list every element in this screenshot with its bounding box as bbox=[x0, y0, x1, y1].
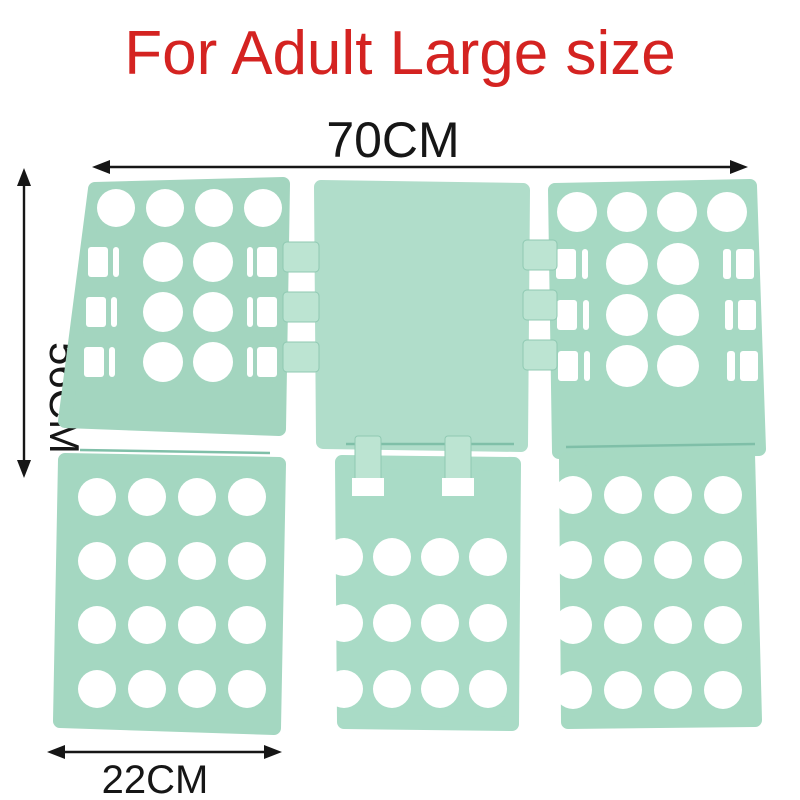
edge-slot bbox=[725, 300, 733, 330]
edge-slot bbox=[257, 347, 277, 377]
fold-hole bbox=[704, 671, 742, 709]
fold-hole bbox=[554, 541, 592, 579]
fold-hole bbox=[654, 476, 692, 514]
edge-slot bbox=[556, 249, 576, 279]
fold-hole bbox=[469, 604, 507, 642]
fold-hole bbox=[78, 670, 116, 708]
fold-hole bbox=[606, 345, 648, 387]
fold-hole bbox=[143, 292, 183, 332]
arrow-right-icon bbox=[264, 745, 282, 759]
clip-window bbox=[352, 478, 384, 496]
fold-hole bbox=[421, 670, 459, 708]
fold-hole bbox=[604, 671, 642, 709]
fold-hole bbox=[657, 243, 699, 285]
fold-hole bbox=[657, 294, 699, 336]
edge-slot bbox=[86, 297, 106, 327]
panel-top-right bbox=[555, 186, 759, 452]
product-image: For Adult Large size 70CM 56CM 22CM bbox=[0, 0, 800, 800]
fold-hole bbox=[143, 342, 183, 382]
panel-bottom-left bbox=[60, 460, 279, 728]
arrow-right-icon bbox=[730, 160, 748, 174]
hinge-tab bbox=[283, 292, 319, 322]
fold-hole bbox=[128, 670, 166, 708]
edge-slot bbox=[738, 300, 756, 330]
fold-hole bbox=[373, 604, 411, 642]
edge-slot bbox=[113, 247, 119, 277]
edge-slot bbox=[88, 247, 108, 277]
panel-top-left bbox=[65, 184, 283, 429]
fold-hole bbox=[78, 606, 116, 644]
hinge-tab bbox=[523, 240, 557, 270]
fold-hole bbox=[704, 606, 742, 644]
bottom-width-dimension: 22CM bbox=[47, 745, 282, 800]
fold-hole bbox=[554, 476, 592, 514]
fold-hole bbox=[373, 670, 411, 708]
fold-hole bbox=[707, 192, 747, 232]
edge-slot bbox=[257, 297, 277, 327]
panel-bottom-center bbox=[325, 462, 514, 724]
fold-hole bbox=[604, 541, 642, 579]
hinge-tab bbox=[523, 290, 557, 320]
edge-slot bbox=[736, 249, 754, 279]
arrow-left-icon bbox=[47, 745, 65, 759]
fold-hole bbox=[469, 670, 507, 708]
edge-slot bbox=[247, 297, 253, 327]
fold-hole bbox=[557, 192, 597, 232]
fold-hole bbox=[421, 538, 459, 576]
fold-hole bbox=[78, 478, 116, 516]
edge-slot bbox=[582, 249, 588, 279]
fold-hole bbox=[195, 189, 233, 227]
fold-hole bbox=[128, 606, 166, 644]
arrow-left-icon bbox=[92, 160, 110, 174]
fold-hole bbox=[325, 604, 363, 642]
edge-slot bbox=[558, 351, 578, 381]
fold-hole bbox=[469, 538, 507, 576]
fold-hole bbox=[604, 476, 642, 514]
fold-hole bbox=[228, 670, 266, 708]
fold-hole bbox=[421, 604, 459, 642]
hinge-tab bbox=[283, 242, 319, 272]
fold-hole bbox=[128, 478, 166, 516]
fold-hole bbox=[193, 292, 233, 332]
fold-hole bbox=[654, 606, 692, 644]
edge-slot bbox=[247, 347, 253, 377]
fold-hole bbox=[654, 671, 692, 709]
fold-hole bbox=[657, 192, 697, 232]
fold-hole bbox=[78, 542, 116, 580]
fold-hole bbox=[228, 606, 266, 644]
fold-hole bbox=[178, 542, 216, 580]
hinge-tab bbox=[283, 342, 319, 372]
fold-hole bbox=[97, 189, 135, 227]
fold-hole bbox=[178, 478, 216, 516]
edge-slot bbox=[111, 297, 117, 327]
panel-top-center-plate bbox=[321, 187, 523, 445]
fold-hole bbox=[607, 192, 647, 232]
fold-hole bbox=[178, 606, 216, 644]
fold-hole bbox=[178, 670, 216, 708]
board-graphic bbox=[60, 184, 759, 728]
fold-hole bbox=[325, 670, 363, 708]
edge-slot bbox=[727, 351, 735, 381]
edge-slot bbox=[557, 300, 577, 330]
fold-hole bbox=[704, 541, 742, 579]
fold-hole bbox=[704, 476, 742, 514]
width-dimension-label: 70CM bbox=[326, 112, 459, 168]
fold-hole bbox=[143, 242, 183, 282]
panel-bottom-right bbox=[554, 454, 755, 722]
clip-window bbox=[442, 478, 474, 496]
hinge-tab bbox=[523, 340, 557, 370]
fold-hole bbox=[654, 541, 692, 579]
fold-hole bbox=[657, 345, 699, 387]
page-title: For Adult Large size bbox=[124, 19, 675, 88]
fold-hole bbox=[193, 242, 233, 282]
fold-hole bbox=[244, 189, 282, 227]
fold-hole bbox=[606, 294, 648, 336]
edge-slot bbox=[584, 351, 590, 381]
arrow-down-icon bbox=[17, 460, 31, 478]
edge-slot bbox=[583, 300, 589, 330]
arrow-up-icon bbox=[17, 168, 31, 186]
edge-slot bbox=[84, 347, 104, 377]
folding-board-diagram: For Adult Large size 70CM 56CM 22CM bbox=[0, 0, 800, 800]
fold-hole bbox=[554, 671, 592, 709]
edge-slot bbox=[109, 347, 115, 377]
edge-slot bbox=[723, 249, 731, 279]
width-dimension: 70CM bbox=[92, 112, 748, 174]
fold-hole bbox=[554, 606, 592, 644]
edge-slot bbox=[257, 247, 277, 277]
bottom-width-dimension-label: 22CM bbox=[102, 758, 209, 800]
fold-hole bbox=[604, 606, 642, 644]
panel-top-center bbox=[321, 187, 523, 445]
fold-hole bbox=[228, 478, 266, 516]
edge-slot bbox=[740, 351, 758, 381]
fold-hole bbox=[146, 189, 184, 227]
hinge-rod bbox=[80, 450, 270, 453]
fold-hole bbox=[325, 538, 363, 576]
fold-hole bbox=[606, 243, 648, 285]
edge-slot bbox=[247, 247, 253, 277]
fold-hole bbox=[228, 542, 266, 580]
fold-hole bbox=[193, 342, 233, 382]
fold-hole bbox=[128, 542, 166, 580]
fold-hole bbox=[373, 538, 411, 576]
